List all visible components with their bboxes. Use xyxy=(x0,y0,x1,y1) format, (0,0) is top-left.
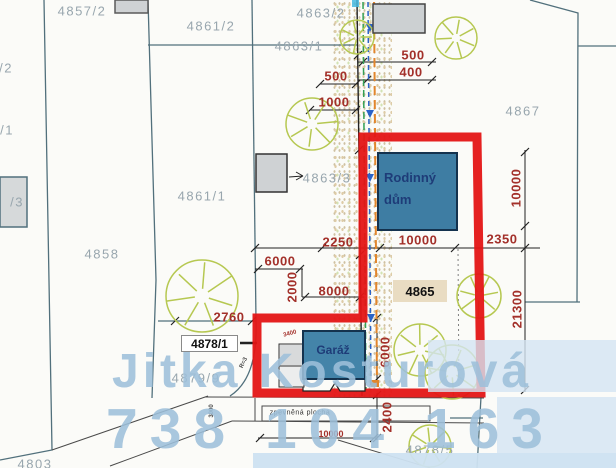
dimension-label: 8000 xyxy=(319,284,350,299)
dimension-label: 2350 xyxy=(487,232,518,247)
watermark-phone: 738 104 163 xyxy=(106,396,555,462)
house-label-line2: dům xyxy=(384,189,436,211)
dimension-label: 400 xyxy=(399,65,422,80)
parcel-number-label: 4863/3 xyxy=(303,171,352,186)
dimension-label: 3400 xyxy=(283,329,297,338)
cadastral-site-plan: 4857/24861/24863/24863/148674861/14863/3… xyxy=(0,0,616,468)
parcel-number-box: 4865 xyxy=(393,280,447,302)
dimension-label: 1000 xyxy=(319,95,350,110)
dimension-label: 2250 xyxy=(323,235,354,250)
dimension-label: 500 xyxy=(324,69,347,84)
parcel-number-label: 4861/1 xyxy=(178,189,227,204)
dimension-label: 21300 xyxy=(510,290,525,329)
dimension-label: 500 xyxy=(401,48,424,63)
house-label-line1: Rodinný xyxy=(384,167,436,189)
parcel-number-label: 4857/2 xyxy=(58,4,107,19)
parcel-number-label: /2 xyxy=(0,61,13,76)
parcel-number-label: 4867 xyxy=(506,104,541,119)
dimension-label: 2760 xyxy=(214,310,245,325)
parcel-number-label: /1 xyxy=(0,123,14,138)
watermark-name: Jitka Kosturová xyxy=(112,344,532,399)
parcel-number-label: 4858 xyxy=(85,247,120,262)
parcel-number-label: 4863/1 xyxy=(275,39,324,54)
dimension-label: 10000 xyxy=(399,233,438,248)
house-label: Rodinný dům xyxy=(384,167,436,211)
parcel-number-label: 4863/2 xyxy=(297,6,346,21)
dimension-label: 2000 xyxy=(285,272,300,303)
parcel-number-label: 4861/2 xyxy=(187,19,236,34)
parcel-number-label: /3 xyxy=(10,195,24,210)
dimension-label: 6000 xyxy=(265,254,296,269)
parcel-number-label: 4803 xyxy=(18,457,53,468)
dimension-label: 10000 xyxy=(509,169,524,208)
